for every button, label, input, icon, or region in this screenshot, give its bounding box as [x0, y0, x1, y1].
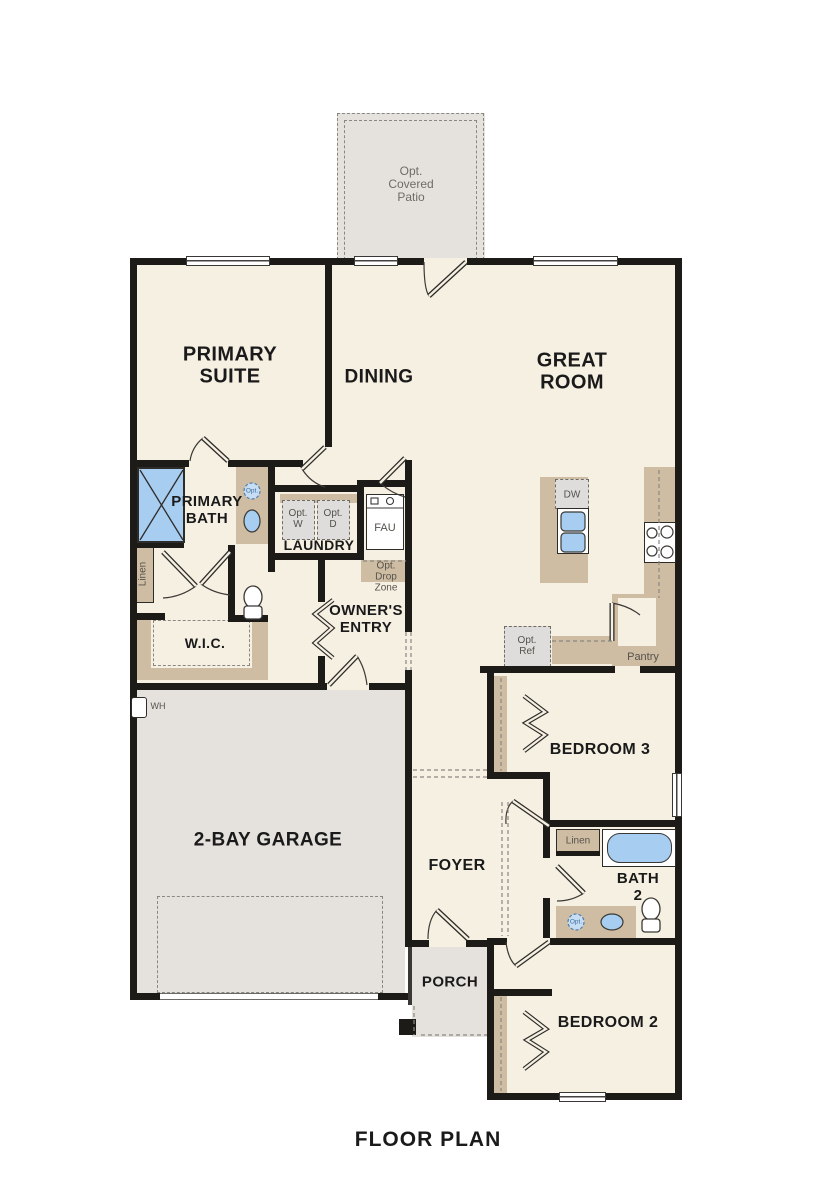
wall — [318, 656, 325, 683]
opt-ref-label: Opt. Ref — [518, 635, 537, 657]
opt-sink-bath2-label: Opt. — [570, 918, 582, 925]
floor-plan-title: FLOOR PLAN — [355, 1128, 502, 1152]
great-room-label: GREAT ROOM — [537, 350, 608, 395]
wall — [480, 666, 615, 673]
porch-wall — [408, 947, 412, 1005]
wall — [357, 480, 412, 487]
bedroom2-label: BEDROOM 2 — [558, 1014, 659, 1032]
laundry-label: LAUNDRY — [284, 538, 355, 554]
window — [186, 256, 270, 266]
bedroom3-closet-shelf — [494, 676, 507, 773]
wall — [137, 613, 165, 620]
pantry-interior — [618, 598, 656, 646]
wall — [405, 940, 429, 947]
front-door-opening — [429, 940, 466, 947]
foyer-label: FOYER — [428, 857, 485, 875]
garage-label: 2-BAY GARAGE — [194, 829, 342, 850]
primary-suite-label: PRIMARY SUITE — [183, 344, 277, 389]
bath2-label: BATH 2 — [617, 871, 659, 905]
bathtub-fixture — [607, 833, 672, 863]
bath2-vanity — [556, 906, 636, 938]
wall — [369, 683, 412, 690]
pantry-label: Pantry — [627, 651, 659, 663]
opt-sink-primary-label: Opt. — [246, 487, 258, 494]
patio-label: Opt. Covered Patio — [388, 165, 433, 205]
water-heater — [131, 697, 147, 718]
window — [533, 256, 618, 266]
window — [672, 773, 682, 817]
wall — [318, 560, 325, 602]
wall — [137, 683, 327, 690]
garage-door-opening — [160, 993, 378, 1000]
opt-washer-label: Opt. W — [289, 508, 308, 530]
wall — [487, 666, 494, 776]
wall — [405, 580, 412, 632]
linen-bath2-label: Linen — [566, 836, 590, 847]
window — [354, 256, 398, 266]
fau-label: FAU — [374, 522, 395, 534]
wall — [640, 666, 682, 673]
wall — [550, 938, 682, 945]
wall — [543, 898, 550, 938]
island-sink-fixture — [557, 508, 589, 554]
dining-label: DINING — [345, 366, 414, 387]
wh-label: WH — [151, 702, 166, 712]
opt-drop-zone-label: Opt. Drop Zone — [375, 561, 398, 594]
floor-plan-canvas: Opt. Covered Patio PRIMARY SUITE DINING … — [0, 0, 833, 1202]
dw-label: DW — [564, 490, 581, 501]
wall — [228, 615, 268, 622]
wic-label: W.I.C. — [185, 636, 226, 652]
wall — [268, 553, 364, 560]
porch-post — [399, 1019, 416, 1035]
wall — [487, 772, 549, 779]
kitchen-counter-bottom — [552, 636, 612, 664]
wall — [357, 480, 364, 560]
primary-bath-label: PRIMARY BATH — [171, 494, 242, 528]
porch-label: PORCH — [422, 975, 478, 992]
wall — [325, 265, 332, 447]
wic-shelf-bottom — [137, 668, 268, 680]
wall — [494, 989, 552, 996]
opt-dryer-label: Opt. D — [324, 508, 343, 530]
garage-door-outline — [157, 896, 383, 993]
wall — [228, 545, 235, 622]
bedroom3-label: BEDROOM 3 — [550, 741, 651, 759]
window — [559, 1092, 606, 1102]
wall — [543, 772, 550, 858]
wall — [130, 258, 137, 1000]
wall — [556, 851, 600, 856]
wall — [405, 460, 412, 580]
wall — [487, 938, 494, 1100]
wall — [137, 460, 189, 467]
wall — [405, 690, 412, 947]
porch-area — [412, 947, 487, 1037]
foyer-strip — [412, 690, 487, 940]
linen-primary-label: Linen — [138, 562, 149, 586]
wall — [543, 820, 682, 827]
wall — [228, 460, 303, 467]
wall — [675, 258, 682, 1100]
wall — [466, 940, 494, 947]
wall — [130, 993, 160, 1000]
patio-door-opening — [424, 258, 467, 265]
cooktop-fixture — [644, 522, 676, 563]
wall — [268, 485, 364, 492]
wall — [378, 993, 412, 1000]
owners-entry-label: OWNER'S ENTRY — [329, 603, 403, 637]
bedroom2-closet-shelf — [494, 996, 507, 1093]
